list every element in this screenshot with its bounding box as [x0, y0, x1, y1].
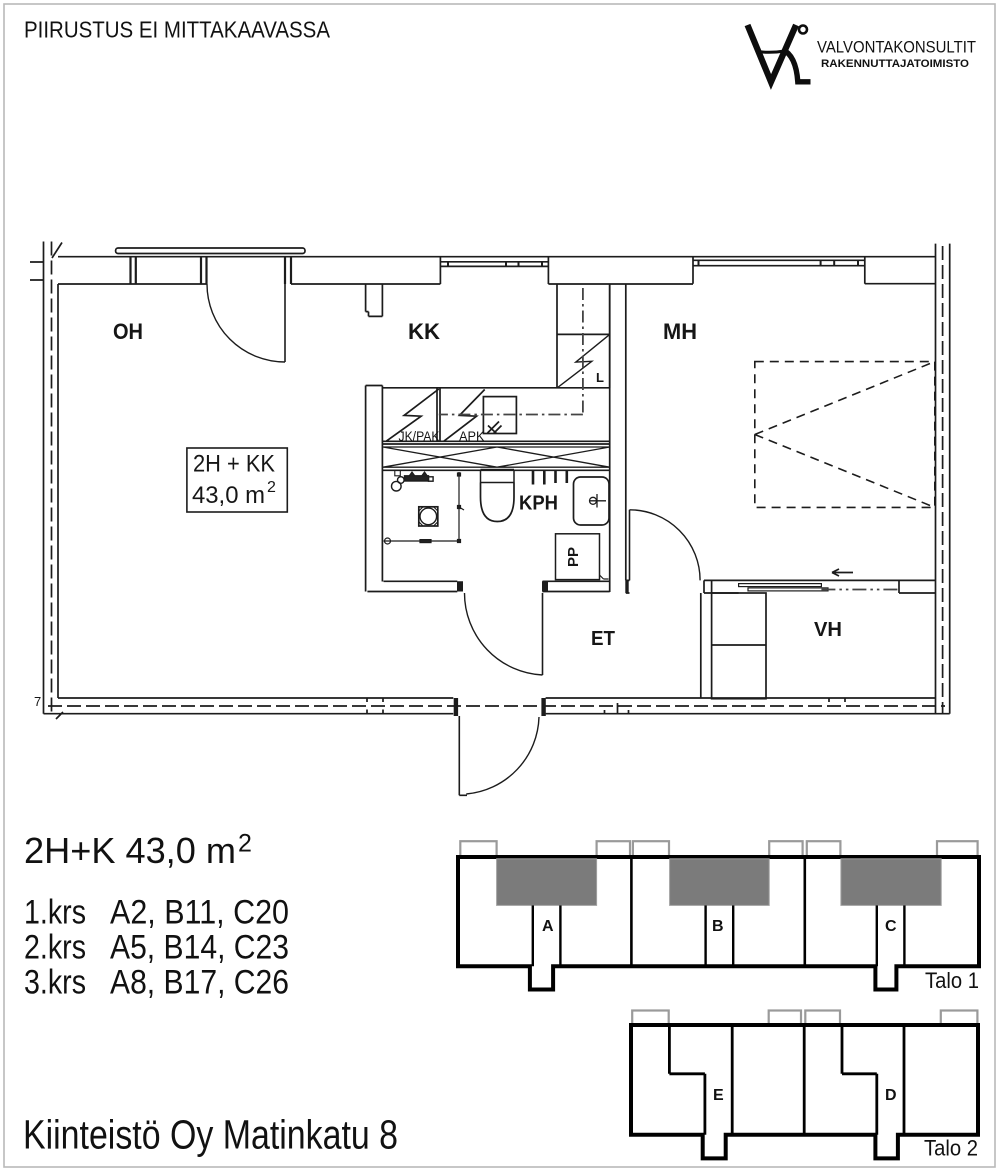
svg-text:APK: APK [459, 429, 485, 444]
svg-text:E: E [713, 1087, 724, 1104]
svg-text:A: A [542, 918, 554, 935]
svg-text:1.krs: 1.krs [24, 894, 86, 932]
svg-text:VALVONTAKONSULTIT: VALVONTAKONSULTIT [817, 38, 976, 57]
svg-text:C: C [885, 918, 897, 935]
svg-text:JK/PAK: JK/PAK [399, 429, 440, 444]
svg-text:RAKENNUTTAJATOIMISTO: RAKENNUTTAJATOIMISTO [821, 58, 969, 70]
svg-text:B: B [712, 918, 724, 935]
svg-text:2: 2 [238, 830, 252, 858]
svg-text:A5, B14, C23: A5, B14, C23 [110, 929, 289, 967]
svg-text:43,0 m: 43,0 m [192, 482, 265, 509]
svg-text:ET: ET [591, 628, 615, 650]
svg-text:3.krs: 3.krs [24, 964, 86, 1002]
svg-text:Talo 2: Talo 2 [924, 1136, 978, 1161]
svg-text:PP: PP [565, 547, 582, 567]
svg-text:Kiinteistö Oy Matinkatu 8: Kiinteistö Oy Matinkatu 8 [23, 1112, 398, 1158]
svg-text:2.krs: 2.krs [24, 929, 86, 967]
svg-text:Talo 1: Talo 1 [925, 968, 979, 993]
svg-text:A8, B17, C26: A8, B17, C26 [110, 964, 289, 1002]
svg-text:2H+K 43,0 m: 2H+K 43,0 m [24, 830, 236, 871]
svg-text:2: 2 [267, 479, 276, 496]
svg-text:D: D [885, 1087, 897, 1104]
svg-text:OH: OH [113, 319, 143, 344]
svg-text:KPH: KPH [519, 493, 558, 515]
svg-text:L: L [596, 370, 604, 385]
svg-text:KK: KK [408, 319, 440, 344]
svg-text:VH: VH [814, 619, 842, 641]
svg-text:MH: MH [663, 319, 697, 344]
svg-text:7: 7 [34, 694, 41, 709]
svg-text:A2, B11, C20: A2, B11, C20 [110, 894, 289, 932]
svg-text:2H + KK: 2H + KK [193, 451, 275, 478]
svg-text:PIIRUSTUS EI MITTAKAAVASSA: PIIRUSTUS EI MITTAKAAVASSA [24, 17, 331, 43]
